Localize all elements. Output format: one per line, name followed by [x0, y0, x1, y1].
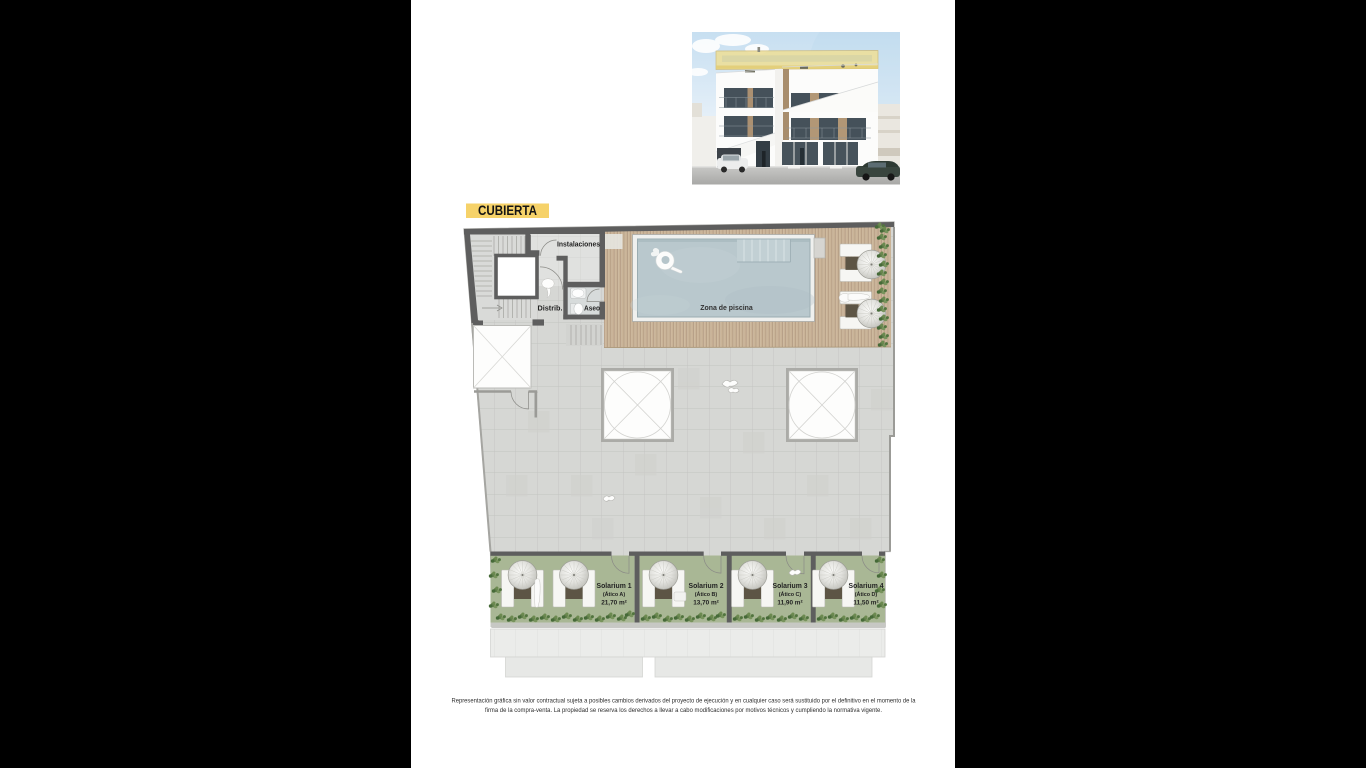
svg-text:Representación gráfica sin val: Representación gráfica sin valor contrac…: [452, 698, 916, 705]
svg-text:Instalaciones: Instalaciones: [557, 242, 600, 249]
svg-text:(Ático C): (Ático C): [779, 591, 802, 598]
svg-text:Aseo: Aseo: [584, 306, 600, 313]
svg-text:Solarium 2: Solarium 2: [689, 581, 724, 590]
svg-text:Solarium 3: Solarium 3: [773, 581, 808, 590]
svg-text:(Ático A): (Ático A): [603, 591, 625, 598]
svg-text:Zona de piscina: Zona de piscina: [700, 303, 753, 312]
svg-text:21,70 m²: 21,70 m²: [601, 600, 627, 607]
svg-text:11,50 m²: 11,50 m²: [853, 600, 878, 607]
svg-text:firma de la compra-venta. La p: firma de la compra-venta. La propiedad s…: [485, 707, 882, 714]
svg-text:CUBIERTA: CUBIERTA: [478, 203, 537, 218]
svg-text:(Ático B): (Ático B): [695, 591, 718, 598]
svg-text:(Ático D): (Ático D): [855, 591, 878, 598]
svg-text:13,70 m²: 13,70 m²: [693, 600, 719, 607]
svg-text:11,90 m²: 11,90 m²: [777, 600, 802, 607]
svg-text:Solarium 1: Solarium 1: [597, 581, 632, 590]
svg-text:Solarium 4: Solarium 4: [849, 581, 884, 590]
svg-text:Distrib.: Distrib.: [538, 306, 563, 313]
